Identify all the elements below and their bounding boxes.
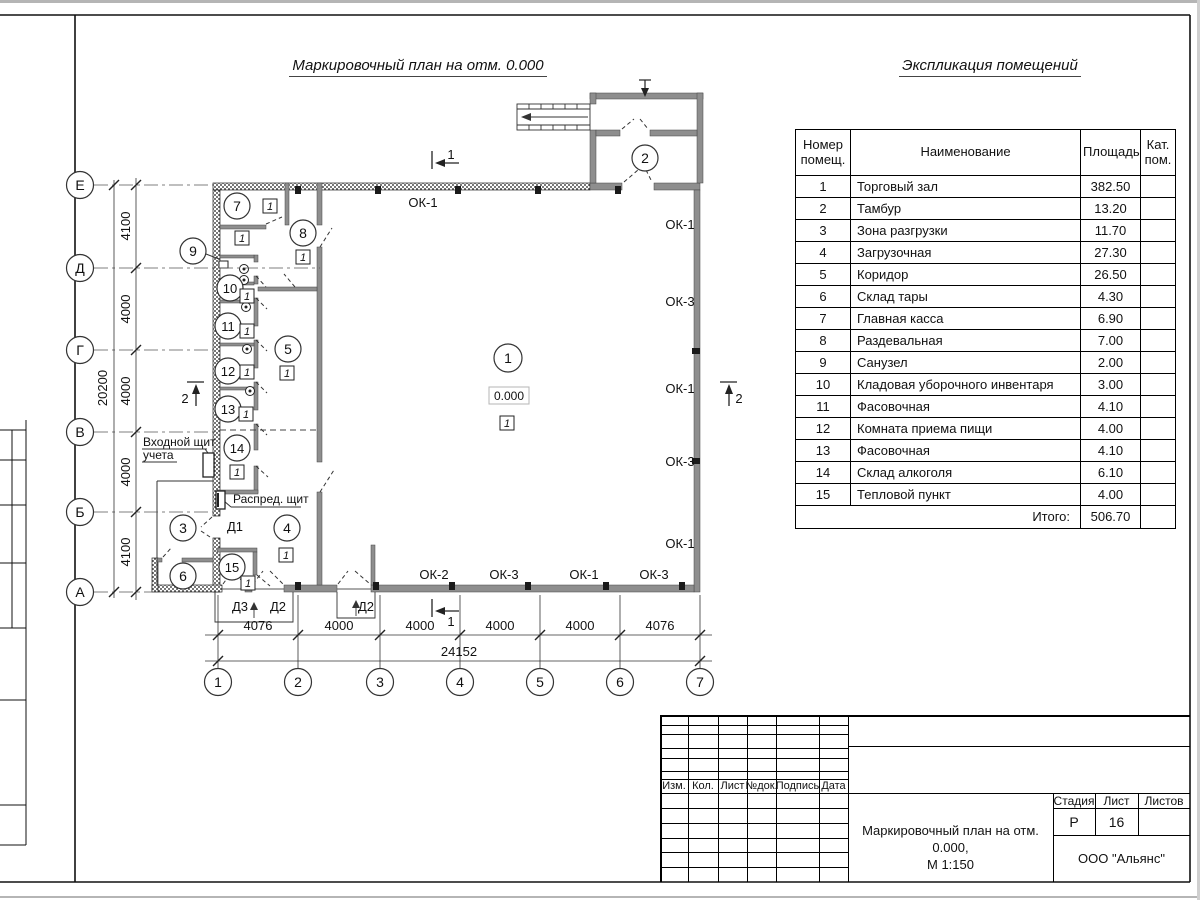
explication-cell-name: Загрузочная [851,242,1081,264]
explication-cell-cat [1141,352,1176,374]
section-mark-label: 1 [447,614,454,629]
explication-cell-name: Склад тары [851,286,1081,308]
explication-cell-name: Фасовочная [851,396,1081,418]
door-marks: Д1 Д3 Д2 Д2 [227,519,374,614]
window-mark: ОК-3 [639,567,668,582]
explication-cell-n: 2 [796,198,851,220]
explication-cell-n: 14 [796,462,851,484]
room-number: 14 [230,441,244,456]
explication-cell-area: 382.50 [1081,176,1141,198]
dim-total-label: 20200 [95,370,110,406]
explication-cell-n: 11 [796,396,851,418]
explication-cell-n: 12 [796,418,851,440]
explication-cell-cat [1141,418,1176,440]
explication-row: 9Санузел2.00 [796,352,1176,374]
room-number: 7 [233,198,241,214]
dim-label: 4100 [118,538,133,567]
explication-cell-area: 26.50 [1081,264,1141,286]
explication-body: 1Торговый зал382.502Тамбур13.203Зона раз… [796,176,1176,506]
door-tag-label: 1 [267,201,273,213]
door-mark: Д2 [358,599,374,614]
explication-cell-cat [1141,396,1176,418]
tb-document-title: Маркировочный план на отм. 0.000, М 1:15… [848,793,1053,882]
window-mark: ОК-1 [569,567,598,582]
tb-col-list: Лист [718,779,747,793]
total-label: Итого: [796,506,1081,529]
explication-cell-cat [1141,484,1176,506]
axis-bubble-label: Г [76,342,84,358]
dim-total-label: 24152 [441,644,477,659]
room-number: 9 [189,243,197,259]
door-tag-label: 1 [239,233,245,245]
explication-row: 14Склад алкоголя6.10 [796,462,1176,484]
room-number: 13 [221,402,235,417]
explication-row: 3Зона разгрузки11.70 [796,220,1176,242]
axis-bubble-label: В [75,424,84,440]
explication-row: 1Торговый зал382.50 [796,176,1176,198]
axis-bubbles-left: Е Д Г В Б А [67,172,94,606]
left-margin-table [0,420,26,845]
window-mark: ОК-3 [665,294,694,309]
window-mark: ОК-1 [408,195,437,210]
distribution-panel-label: Распред. щит [233,492,309,506]
explication-cell-name: Тепловой пункт [851,484,1081,506]
tb-sheets-label: Листов [1138,793,1190,808]
explication-cell-name: Санузел [851,352,1081,374]
explication-title: Экспликация помещений [860,57,1120,77]
explication-cell-n: 8 [796,330,851,352]
explication-cell-area: 4.10 [1081,440,1141,462]
axis-bubble-label: Е [75,177,84,193]
door-tag-label: 1 [234,467,240,479]
door-tag-label: 1 [504,418,510,430]
explication-cell-n: 6 [796,286,851,308]
explication-cell-cat [1141,264,1176,286]
tb-document-title-line2: М 1:150 [927,857,974,874]
room-number: 8 [299,225,307,241]
explication-cell-area: 3.00 [1081,374,1141,396]
tb-sheet-value: 16 [1095,808,1138,835]
door-mark: Д1 [227,519,243,534]
room-number: 4 [283,520,291,536]
tb-col-dok: №док. [747,779,776,793]
explication-cell-area: 4.00 [1081,484,1141,506]
explication-cell-area: 6.10 [1081,462,1141,484]
explication-cell-area: 11.70 [1081,220,1141,242]
explication-cell-cat [1141,198,1176,220]
door-tag-label: 1 [300,252,306,264]
explication-row: 12Комната приема пищи4.00 [796,418,1176,440]
explication-cell-name: Склад алкоголя [851,462,1081,484]
window-mark: ОК-2 [419,567,448,582]
explication-cell-cat [1141,220,1176,242]
dim-label: 4076 [646,618,675,633]
explication-cell-area: 2.00 [1081,352,1141,374]
explication-cell-name: Зона разгрузки [851,220,1081,242]
explication-cell-name: Кладовая уборочного инвентаря [851,374,1081,396]
axis-bubbles-bottom: 1 2 3 4 5 6 7 [205,669,714,696]
door-mark: Д3 [232,599,248,614]
window-mark: ОК-1 [665,536,694,551]
explication-row: 2Тамбур13.20 [796,198,1176,220]
entry-panel-symbol [203,453,214,477]
explication-cell-name: Раздевальная [851,330,1081,352]
explication-cell-area: 4.30 [1081,286,1141,308]
axis-bubble-label: 1 [214,674,222,690]
explication-cell-name: Главная касса [851,308,1081,330]
explication-row: 8Раздевальная7.00 [796,330,1176,352]
axis-bubble-label: 5 [536,674,544,690]
explication-row: 13Фасовочная4.10 [796,440,1176,462]
room-number: 1 [504,350,512,366]
explication-row: 15Тепловой пункт4.00 [796,484,1176,506]
dimensions-left: 4100 4000 4000 4000 4100 20200 [95,178,141,600]
explication-cell-area: 6.90 [1081,308,1141,330]
col-header-category: Кат. пом. [1141,130,1176,176]
explication-row: 10Кладовая уборочного инвентаря3.00 [796,374,1176,396]
door-type-tags: 1 1 1 1 1 1 1 1 1 1 1 1 [230,199,514,590]
explication-cell-n: 15 [796,484,851,506]
explication-cell-name: Фасовочная [851,440,1081,462]
explication-row: 7Главная касса6.90 [796,308,1176,330]
plan-title: Маркировочный план на отм. 0.000 [248,57,588,77]
window-mark: ОК-1 [665,381,694,396]
total-category-cell [1141,506,1176,529]
dim-label: 4000 [566,618,595,633]
dim-label: 4000 [406,618,435,633]
explication-cell-name: Торговый зал [851,176,1081,198]
room-number: 11 [221,319,235,334]
room-number: 10 [223,281,237,296]
col-header-name: Наименование [851,130,1081,176]
axis-bubble-label: 4 [456,674,464,690]
tb-company: ООО "Альянс" [1053,835,1190,882]
tb-col-data: Дата [819,779,848,793]
room-number: 12 [221,364,235,379]
explication-cell-cat [1141,330,1176,352]
explication-cell-cat [1141,286,1176,308]
elevation-value: 0.000 [494,389,524,403]
room-number: 15 [225,560,239,575]
tb-stage-label: Стадия [1053,793,1095,808]
section-mark-label: 2 [181,391,188,406]
dim-label: 4076 [244,618,273,633]
dim-label: 4000 [325,618,354,633]
explication-cell-cat [1141,308,1176,330]
explication-cell-n: 5 [796,264,851,286]
drawing-sheet: 4076 4000 4000 4000 4000 4076 24152 [0,0,1200,900]
ramp [517,104,590,130]
entry-panel-label-2: учета [143,448,174,462]
explication-cell-n: 7 [796,308,851,330]
explication-cell-name: Коридор [851,264,1081,286]
room-number: 6 [179,568,187,584]
explication-cell-area: 27.30 [1081,242,1141,264]
elevation-mark: 0.000 [489,387,529,404]
room-number: 5 [284,341,292,357]
explication-cell-cat [1141,374,1176,396]
col-header-area: Площадь [1081,130,1141,176]
door-tag-label: 1 [244,367,250,379]
door-tag-label: 1 [243,409,249,421]
axis-bubble-label: А [75,584,85,600]
explication-cell-cat [1141,242,1176,264]
title-block: Изм. Кол. Лист №док. Подпись Дата Стадия… [660,715,1190,882]
dim-label: 4100 [118,212,133,241]
explication-row: 4Загрузочная27.30 [796,242,1176,264]
explication-cell-area: 7.00 [1081,330,1141,352]
dim-label: 4000 [118,377,133,406]
axis-bubble-label: 6 [616,674,624,690]
explication-cell-cat [1141,440,1176,462]
room-number: 3 [179,520,187,536]
room-number: 2 [641,150,649,166]
section-mark-label: 2 [735,391,742,406]
tb-document-title-line1: Маркировочный план на отм. 0.000, [848,823,1053,857]
explication-cell-cat [1141,176,1176,198]
window-mark: ОК-3 [489,567,518,582]
section-mark-label: 1 [447,147,454,162]
tb-col-izm: Изм. [660,779,688,793]
axis-bubble-label: 2 [294,674,302,690]
total-value: 506.70 [1081,506,1141,529]
door-tag-label: 1 [245,578,251,590]
explication-cell-n: 4 [796,242,851,264]
tb-stage-value: Р [1053,808,1095,835]
tb-col-kol: Кол. [688,779,718,793]
door-tag-label: 1 [244,326,250,338]
explication-cell-name: Тамбур [851,198,1081,220]
dim-label: 4000 [118,458,133,487]
door-tag-label: 1 [244,291,250,303]
window-mark: ОК-1 [665,217,694,232]
axis-bubble-label: 3 [376,674,384,690]
explication-cell-n: 1 [796,176,851,198]
door-tag-label: 1 [284,368,290,380]
explication-cell-n: 9 [796,352,851,374]
explication-row: 5Коридор26.50 [796,264,1176,286]
axis-bubble-label: 7 [696,674,704,690]
axis-bubble-label: Б [75,504,84,520]
tb-sheet-label: Лист [1095,793,1138,808]
explication-cell-name: Комната приема пищи [851,418,1081,440]
explication-header-row: Номер помещ. Наименование Площадь Кат. п… [796,130,1176,176]
explication-total-row: Итого: 506.70 [796,506,1176,529]
explication-cell-area: 4.00 [1081,418,1141,440]
explication-row: 6Склад тары4.30 [796,286,1176,308]
explication-cell-cat [1141,462,1176,484]
entry-panel-label: Входной щит [143,435,216,449]
explication-cell-area: 13.20 [1081,198,1141,220]
section-marks: 1 1 2 2 [181,147,742,629]
door-tag-label: 1 [283,550,289,562]
explication-cell-area: 4.10 [1081,396,1141,418]
dim-label: 4000 [118,295,133,324]
col-header-number: Номер помещ. [796,130,851,176]
dim-label: 4000 [486,618,515,633]
tb-col-podpis: Подпись [776,779,819,793]
axis-bubble-label: Д [75,260,85,276]
explication-cell-n: 10 [796,374,851,396]
door-mark: Д2 [270,599,286,614]
window-marks: ОК-1 ОК-1 ОК-3 ОК-1 ОК-3 ОК-1 ОК-2 ОК-3 … [408,195,694,582]
explication-cell-n: 13 [796,440,851,462]
explication-table: Номер помещ. Наименование Площадь Кат. п… [795,129,1176,529]
window-mark: ОК-3 [665,454,694,469]
explication-cell-n: 3 [796,220,851,242]
explication-row: 11Фасовочная4.10 [796,396,1176,418]
